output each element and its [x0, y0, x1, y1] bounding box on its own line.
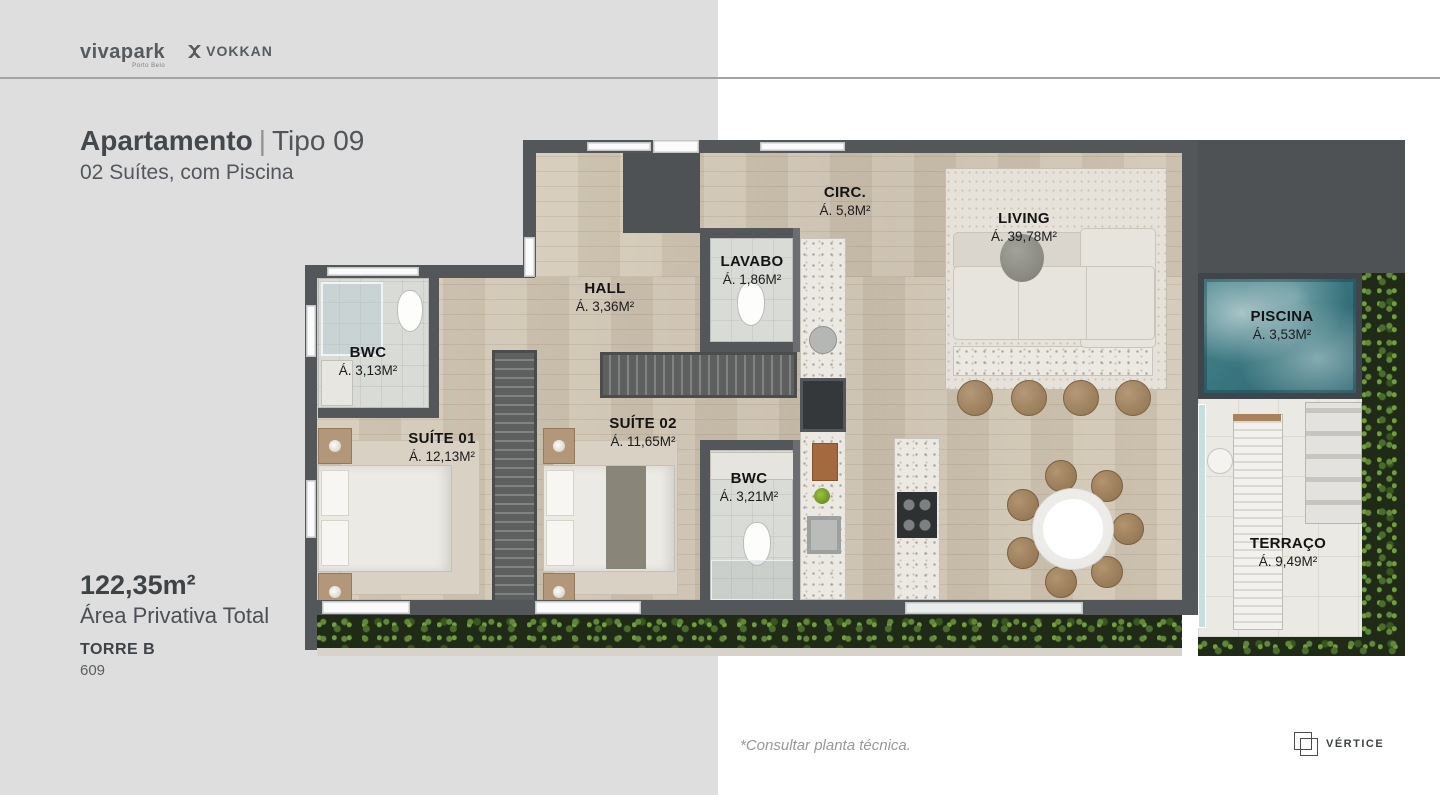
dining-chair — [1045, 566, 1077, 598]
planter-curb — [317, 648, 1182, 656]
wall-bwc2-left — [700, 440, 710, 600]
kitchen-sink — [807, 516, 841, 554]
pouf — [1063, 380, 1099, 416]
terrace-side-table — [1207, 448, 1233, 474]
entry-vestibule — [623, 153, 700, 233]
hedge-bottom-right — [1198, 637, 1405, 656]
window-left-1 — [306, 305, 316, 357]
terrace-stairs — [1305, 402, 1362, 524]
pouf — [957, 380, 993, 416]
wall-kitchen-divider — [793, 440, 800, 600]
bwc2-shower — [711, 560, 794, 600]
vertice-wordmark: VÉRTICE — [1326, 738, 1384, 750]
tower-label: TORRE B — [80, 641, 155, 659]
area-block: 122,35m² Área Privativa Total — [80, 570, 269, 629]
private-area-label: Área Privativa Total — [80, 603, 269, 629]
planter-bottom — [317, 615, 1182, 648]
vivapark-logo: vivapark Porto Belo — [80, 42, 165, 69]
suite01-pillow — [321, 520, 349, 566]
title-apartment: Apartamento — [80, 125, 253, 156]
pouf — [1115, 380, 1151, 416]
wall-bwc1-right — [429, 278, 439, 418]
suite01-nightstand — [318, 428, 352, 464]
kitchen-plant — [814, 488, 830, 504]
vertice-logo: VÉRTICE — [1294, 732, 1384, 756]
wall-kitchen-divider — [793, 228, 800, 352]
window-bwc1 — [327, 267, 419, 276]
room-label-hall: HALL Á. 3,36M² — [576, 280, 635, 316]
vivapark-wordmark: vivapark — [80, 42, 165, 62]
wall-lavabo-top — [700, 228, 800, 238]
room-label-circ: CIRC. Á. 5,8M² — [819, 184, 870, 220]
brand-row: vivapark Porto Belo VOKKAN — [80, 42, 273, 69]
suite01-closet — [492, 350, 537, 610]
window-top-1 — [587, 142, 651, 151]
sofa-seat — [953, 266, 1155, 340]
header-divider-line — [0, 77, 1440, 79]
room-label-suite01: SUÍTE 01 Á. 12,13M² — [408, 430, 475, 466]
kitchen-cutting-board — [812, 443, 838, 481]
title-separator: | — [253, 125, 272, 156]
unit-number: 609 — [80, 662, 155, 679]
private-area-value: 122,35m² — [80, 570, 269, 600]
sun-lounger — [1233, 414, 1283, 630]
window-top-2 — [760, 142, 845, 151]
sun-lounger-headrest — [1233, 414, 1281, 421]
coffee-bench — [953, 346, 1153, 376]
vertice-square-inner — [1300, 738, 1318, 756]
dining-chair — [1112, 513, 1144, 545]
vokkan-x-icon — [187, 44, 202, 59]
room-label-bwc1: BWC Á. 3,13M² — [339, 344, 398, 380]
entry-door — [653, 140, 699, 153]
suite02-closet — [600, 352, 797, 398]
floorplan: CIRC. Á. 5,8M² LIVING Á. 39,78M² HALL Á.… — [305, 140, 1405, 658]
suite02-bed — [543, 465, 675, 572]
window-upper-left — [524, 237, 535, 277]
suite02-pillow — [546, 520, 574, 566]
window-suite02 — [535, 601, 641, 614]
hedge-right — [1362, 268, 1405, 656]
pouf — [1011, 380, 1047, 416]
kitchen-sink-round — [809, 326, 837, 354]
vertice-squares-icon — [1294, 732, 1318, 756]
room-label-terraco: TERRAÇO Á. 9,49M² — [1250, 535, 1326, 571]
room-label-lavabo: LAVABO Á. 1,86M² — [721, 253, 784, 289]
sliding-door-living — [905, 602, 1083, 614]
technical-note: *Consultar planta técnica. — [740, 737, 911, 754]
window-left-2 — [306, 480, 316, 538]
dining-table — [1032, 488, 1114, 570]
wall-bwc1-bottom — [318, 408, 439, 418]
wall-lavabo-left — [700, 228, 710, 352]
suite01-pillow — [321, 470, 349, 516]
terrace-glass-railing — [1198, 404, 1206, 628]
wall-right — [1182, 140, 1198, 615]
tower-block: TORRE B 609 — [80, 641, 155, 679]
wall-bwc2-top — [700, 440, 800, 450]
wall-lavabo-bottom — [700, 342, 800, 352]
window-suite01 — [322, 601, 410, 614]
structure-block-top-right — [1198, 140, 1405, 273]
suite02-pillow — [546, 470, 574, 516]
room-label-piscina: PISCINA Á. 3,53M² — [1251, 308, 1314, 344]
room-label-living: LIVING Á. 39,78M² — [991, 210, 1057, 246]
kitchen-cooktop — [897, 492, 937, 538]
bwc1-toilet — [397, 290, 423, 332]
suite01-bed — [318, 465, 452, 572]
vokkan-logo: VOKKAN — [187, 43, 273, 59]
vivapark-sub-label: Porto Belo — [80, 63, 165, 69]
suite02-throw-blanket — [606, 466, 646, 569]
suite02-nightstand — [543, 428, 575, 464]
room-label-bwc2: BWC Á. 3,21M² — [720, 470, 779, 506]
room-label-suite02: SUÍTE 02 Á. 11,65M² — [609, 415, 676, 451]
vokkan-wordmark: VOKKAN — [206, 43, 273, 59]
kitchen-fridge — [800, 378, 846, 432]
